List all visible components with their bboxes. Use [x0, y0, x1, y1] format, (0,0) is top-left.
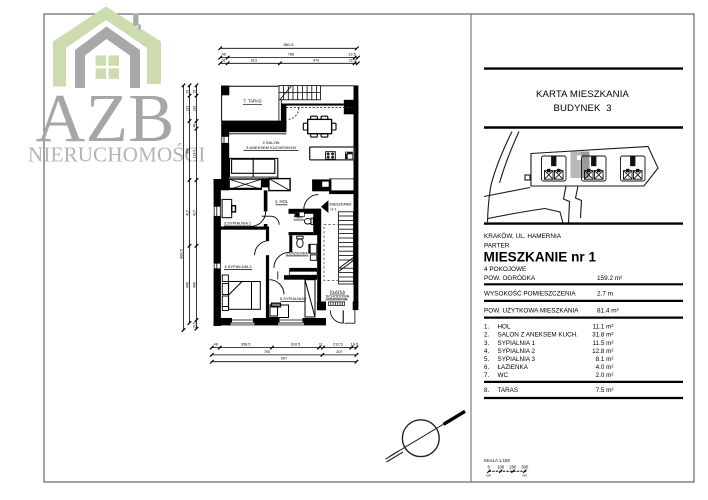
svg-text:19.5: 19.5: [351, 343, 358, 347]
svg-text:310.5: 310.5: [291, 343, 301, 347]
svg-text:SYPIALNIA 2: SYPIALNIA 2: [498, 348, 536, 355]
svg-text:5.SYPIALNIA3: 5.SYPIALNIA3: [280, 296, 307, 301]
svg-text:182: 182: [193, 106, 197, 112]
svg-text:KARTA MIESZKANIA: KARTA MIESZKANIA: [536, 89, 629, 100]
svg-text:cm: cm: [523, 473, 528, 477]
svg-text:46: 46: [222, 53, 226, 57]
svg-text:446: 446: [186, 282, 190, 288]
svg-text:MIESZKANIE nr 1: MIESZKANIE nr 1: [484, 250, 597, 265]
svg-text:21.5: 21.5: [349, 58, 356, 62]
svg-text:2.7 m: 2.7 m: [597, 291, 613, 298]
svg-text:4.SYPIALNIA 2: 4.SYPIALNIA 2: [224, 264, 252, 269]
svg-text:19.5: 19.5: [193, 322, 197, 329]
svg-text:473: 473: [313, 58, 319, 62]
svg-text:159.2 m²: 159.2 m²: [597, 275, 622, 282]
svg-text:358.5: 358.5: [241, 343, 251, 347]
svg-text:6.ŁAZIENKA: 6.ŁAZIENKA: [286, 251, 308, 255]
svg-text:7.: 7.: [484, 372, 490, 379]
svg-text:8.1 m²: 8.1 m²: [596, 356, 614, 363]
svg-text:PARTER: PARTER: [484, 242, 510, 249]
svg-text:8.: 8.: [484, 387, 490, 394]
svg-text:WC: WC: [498, 372, 509, 379]
svg-text:NIERUCHOMOŚCI: NIERUCHOMOŚCI: [28, 143, 206, 167]
svg-text:3.SYPIALNIA 1: 3.SYPIALNIA 1: [224, 220, 252, 225]
svg-text:KRAKÓW, UL. HAMERNIA: KRAKÓW, UL. HAMERNIA: [484, 231, 562, 240]
svg-text:POW. UŻYTKOWA MIESZKANIA: POW. UŻYTKOWA MIESZKANIA: [484, 305, 579, 314]
svg-text:207: 207: [336, 350, 342, 354]
svg-text:4.: 4.: [484, 348, 490, 355]
svg-text:861.5: 861.5: [283, 42, 294, 47]
svg-text:300: 300: [521, 465, 529, 470]
svg-text:SYPIALNIA 1: SYPIALNIA 1: [498, 340, 536, 347]
svg-text:700: 700: [264, 350, 270, 354]
svg-text:214.5: 214.5: [193, 150, 197, 159]
svg-text:SALON Z ANEKSEM KUCH.: SALON Z ANEKSEM KUCH.: [498, 332, 579, 339]
svg-text:52: 52: [186, 90, 190, 94]
svg-text:11.5 m²: 11.5 m²: [593, 340, 614, 347]
svg-text:48: 48: [214, 343, 218, 347]
svg-text:7.WC: 7.WC: [294, 216, 304, 220]
svg-text:417: 417: [193, 210, 197, 216]
svg-text:SYPIALNIA 3: SYPIALNIA 3: [498, 356, 536, 363]
svg-text:Z ANEKSEM KUCHENNYM: Z ANEKSEM KUCHENNYM: [246, 145, 296, 150]
svg-text:7. TARAS: 7. TARAS: [243, 99, 261, 104]
svg-text:7.5 m²: 7.5 m²: [596, 387, 614, 394]
svg-text:4 POKOJOWE: 4 POKOJOWE: [484, 266, 526, 273]
svg-text:200: 200: [509, 465, 517, 470]
svg-text:1. HOL: 1. HOL: [275, 199, 289, 204]
svg-text:100: 100: [497, 465, 505, 470]
svg-text:ŁAZIENKA: ŁAZIENKA: [498, 364, 529, 371]
svg-text:WYSOKOŚĆ POMIESZCZENIA: WYSOKOŚĆ POMIESZCZENIA: [484, 289, 576, 298]
svg-text:cm: cm: [487, 473, 492, 477]
svg-text:POW. OGRÓDKA: POW. OGRÓDKA: [484, 273, 536, 282]
svg-text:TARAS: TARAS: [498, 387, 519, 394]
svg-text:1.: 1.: [484, 324, 490, 331]
svg-text:12.8 m²: 12.8 m²: [592, 348, 613, 355]
svg-text:2.0 m²: 2.0 m²: [596, 372, 614, 379]
svg-text:81.4 m²: 81.4 m²: [597, 307, 619, 314]
svg-text:2.: 2.: [484, 332, 490, 339]
svg-text:889.5: 889.5: [180, 249, 184, 259]
svg-text:48: 48: [193, 124, 197, 128]
svg-text:6.: 6.: [484, 364, 490, 371]
svg-text:11: 11: [319, 343, 323, 347]
svg-text:766: 766: [288, 53, 294, 57]
svg-text:51: 51: [222, 58, 226, 62]
svg-text:212.5: 212.5: [333, 343, 343, 347]
svg-text:907: 907: [281, 357, 287, 361]
svg-text:19.5: 19.5: [348, 53, 355, 57]
svg-text:MIESZKANIE: MIESZKANIE: [330, 202, 353, 206]
svg-text:5.: 5.: [484, 356, 490, 363]
svg-text:SKALA 1:150: SKALA 1:150: [484, 458, 511, 463]
svg-text:52: 52: [193, 90, 197, 94]
svg-text:390: 390: [186, 148, 190, 154]
svg-text:313: 313: [251, 58, 257, 62]
svg-text:3.: 3.: [484, 340, 490, 347]
svg-text:HOL: HOL: [498, 324, 511, 331]
svg-text:4.0 m²: 4.0 m²: [596, 364, 614, 371]
svg-text:nr 1: nr 1: [331, 208, 337, 212]
svg-text:417: 417: [186, 210, 190, 216]
svg-text:31.8 m²: 31.8 m²: [592, 332, 613, 339]
svg-text:BUDYNEK 3: BUDYNEK 3: [553, 103, 611, 114]
svg-text:446: 446: [193, 282, 197, 288]
svg-text:182: 182: [186, 106, 190, 112]
svg-text:WEJŚCIE BUDYNEK: WEJŚCIE BUDYNEK: [325, 299, 348, 302]
svg-text:11.1 m²: 11.1 m²: [593, 324, 614, 331]
